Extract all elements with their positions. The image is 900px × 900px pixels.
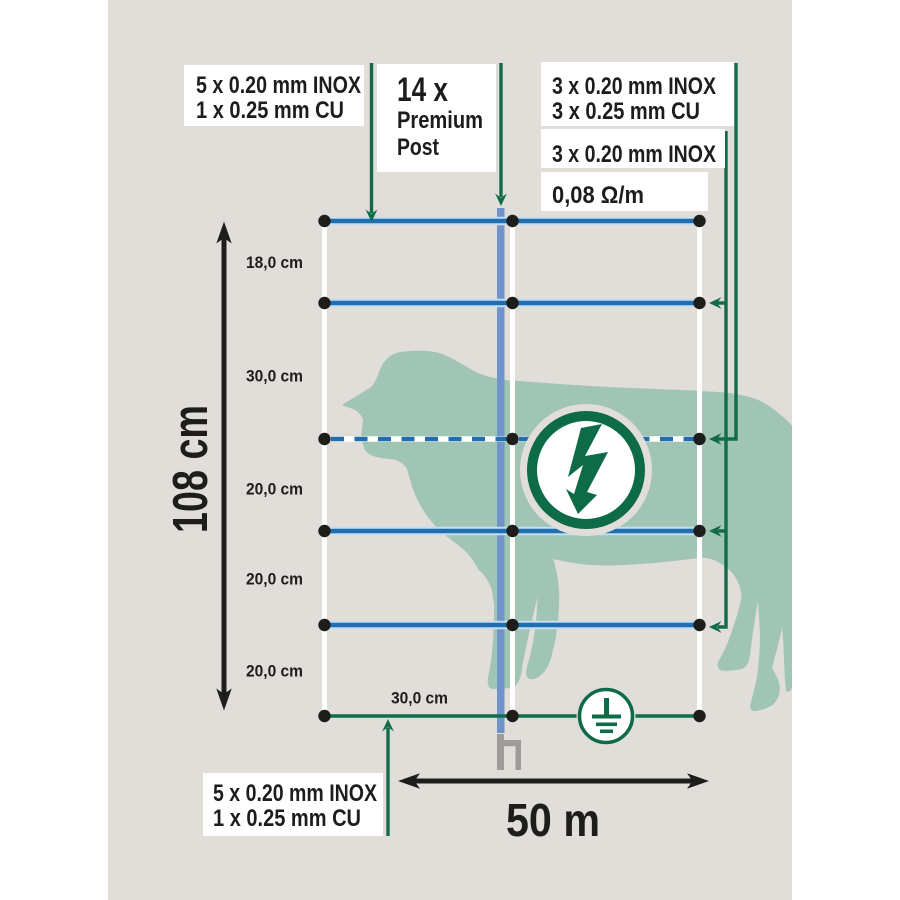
svg-text:0,08 Ω/m: 0,08 Ω/m: [552, 182, 644, 209]
svg-text:30,0 cm: 30,0 cm: [391, 689, 448, 708]
svg-text:20,0 cm: 20,0 cm: [246, 480, 303, 499]
svg-text:3 x 0.20 mm INOX: 3 x 0.20 mm INOX: [552, 141, 717, 168]
svg-text:1 x 0.25 mm CU: 1 x 0.25 mm CU: [196, 97, 344, 124]
svg-text:20,0 cm: 20,0 cm: [246, 662, 303, 681]
svg-text:3 x 0.25 mm CU: 3 x 0.25 mm CU: [552, 98, 700, 125]
svg-text:50 m: 50 m: [506, 794, 600, 846]
svg-text:20,0 cm: 20,0 cm: [246, 570, 303, 589]
svg-text:3 x 0.20 mm INOX: 3 x 0.20 mm INOX: [552, 73, 717, 100]
svg-text:Premium: Premium: [397, 107, 483, 134]
svg-text:Post: Post: [397, 134, 439, 161]
svg-text:5 x 0.20 mm INOX: 5 x 0.20 mm INOX: [213, 780, 378, 807]
svg-text:1 x 0.25 mm CU: 1 x 0.25 mm CU: [213, 805, 361, 832]
svg-text:30,0 cm: 30,0 cm: [246, 367, 303, 386]
svg-text:14 x: 14 x: [397, 71, 448, 109]
svg-text:5 x 0.20 mm INOX: 5 x 0.20 mm INOX: [196, 72, 362, 99]
svg-text:108 cm: 108 cm: [164, 405, 218, 533]
svg-text:18,0 cm: 18,0 cm: [246, 253, 303, 272]
